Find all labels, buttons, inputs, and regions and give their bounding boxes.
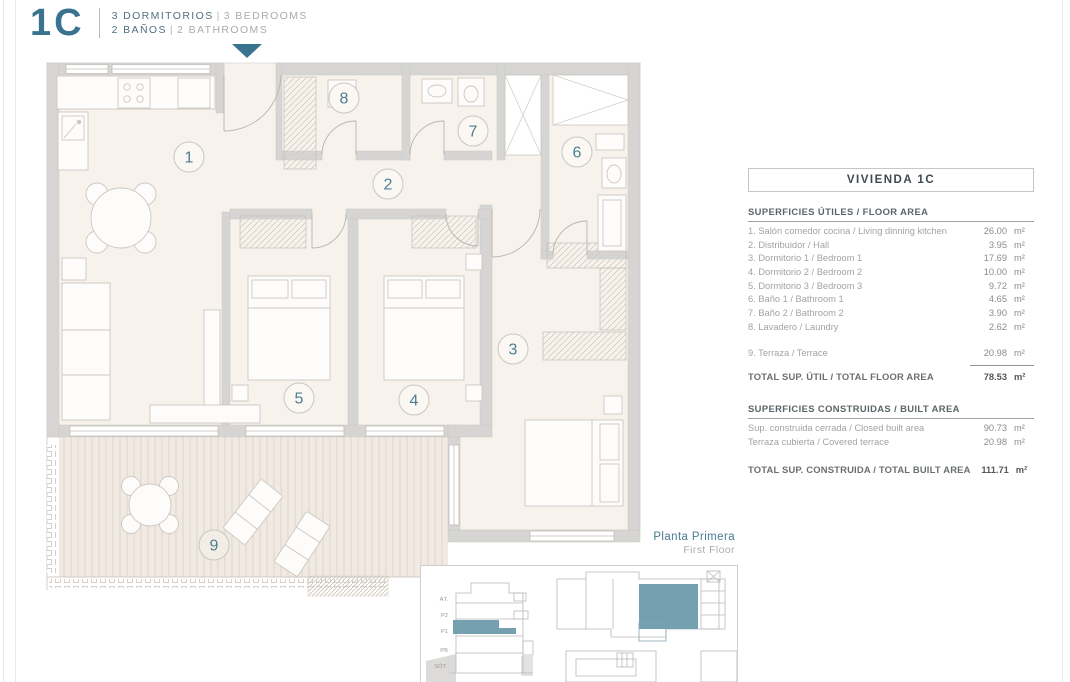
- table-row: 7. Baño 2 / Bathroom 23.90m²: [748, 307, 1034, 321]
- floor-title: Planta Primera First Floor: [560, 530, 735, 557]
- separator: |: [214, 10, 224, 22]
- svg-text:4: 4: [410, 393, 419, 410]
- svg-text:5: 5: [295, 391, 304, 408]
- room-circle-2: 2: [373, 169, 403, 199]
- floor-label-sotano: SÓT.: [434, 663, 447, 670]
- useful-area-heading: SUPERFICIES ÚTILES / FLOOR AREA: [748, 206, 1034, 222]
- tv-unit: [204, 310, 220, 412]
- bedrooms-es: 3 DORMITORIOS: [112, 10, 214, 22]
- sideboard: [150, 405, 260, 423]
- brochure-page: 1C 3 DORMITORIOS|3 BEDROOMS 2 BAÑOS|2 BA…: [0, 0, 1070, 682]
- page-edge-line-left-outer: [3, 0, 4, 682]
- svg-text:6: 6: [573, 145, 582, 162]
- entrance-arrow-icon: [232, 44, 262, 58]
- floor-plan: 1 2 3 4 5 6 7: [30, 40, 660, 610]
- room-circle-5: 5: [284, 383, 314, 413]
- header-subtitle: 3 DORMITORIOS|3 BEDROOMS 2 BAÑOS|2 BATHR…: [112, 4, 308, 37]
- svg-text:2: 2: [384, 177, 393, 194]
- header: 1C 3 DORMITORIOS|3 BEDROOMS 2 BAÑOS|2 BA…: [30, 4, 308, 42]
- total-floor-area-row: TOTAL SUP. ÚTIL / TOTAL FLOOR AREA78.53m…: [748, 369, 1034, 385]
- table-row: Sup. construida cerrada / Closed built a…: [748, 422, 1034, 436]
- bedrooms-en: 3 BEDROOMS: [224, 10, 308, 22]
- bathrooms-en: 2 BATHROOMS: [177, 24, 268, 36]
- page-edge-line-left-inner: [15, 0, 16, 682]
- svg-text:3: 3: [509, 342, 518, 359]
- locator-panel: ÁT. P2 P1 PB SÓT.: [420, 565, 738, 682]
- floor-label-p2: P2: [441, 613, 448, 619]
- table-row: 1. Salón comedor cocina / Living dinning…: [748, 225, 1034, 239]
- room-circle-4: 4: [399, 385, 429, 415]
- table-row: 6. Baño 1 / Bathroom 14.65m²: [748, 293, 1034, 307]
- floor-title-en: First Floor: [560, 544, 735, 557]
- svg-text:7: 7: [469, 124, 478, 141]
- table-row: 5. Dormitorio 3 / Bedroom 39.72m²: [748, 280, 1034, 294]
- built-area-heading: SUPERFICIES CONSTRUIDAS / BUILT AREA: [748, 403, 1034, 419]
- bathrooms-es: 2 BAÑOS: [112, 24, 167, 36]
- areas-table: VIVIENDA 1C SUPERFICIES ÚTILES / FLOOR A…: [748, 168, 1034, 478]
- table-row: 3. Dormitorio 1 / Bedroom 117.69m²: [748, 252, 1034, 266]
- floor-title-es: Planta Primera: [560, 530, 735, 544]
- side-table: [62, 258, 86, 280]
- locator-drawing: ÁT. P2 P1 PB SÓT.: [421, 566, 737, 682]
- room-circle-6: 6: [562, 137, 592, 167]
- bathrooms-line: 2 BAÑOS|2 BATHROOMS: [112, 23, 308, 37]
- svg-text:8: 8: [340, 91, 349, 108]
- table-row: Terraza cubierta / Covered terrace20.98m…: [748, 436, 1034, 450]
- room-circle-3: 3: [498, 334, 528, 364]
- highlighted-unit: [639, 584, 698, 629]
- terrace-row: 9. Terraza / Terrace20.98m²: [748, 347, 1034, 361]
- floor-label-atico: ÁT.: [440, 596, 449, 603]
- svg-text:1: 1: [185, 150, 194, 167]
- room-circle-7: 7: [458, 116, 488, 146]
- table-title: VIVIENDA 1C: [748, 168, 1034, 192]
- svg-text:9: 9: [210, 538, 219, 555]
- table-row: 8. Lavadero / Laundry2.62m²: [748, 321, 1034, 335]
- separator: |: [167, 24, 177, 36]
- dining-table: [86, 183, 156, 253]
- planter-greenery: [308, 576, 388, 596]
- terrace-railing-left: [47, 445, 56, 573]
- floor-label-p1: P1: [441, 629, 448, 635]
- highlighted-floor-p1: [453, 620, 516, 634]
- room-circle-9: 9: [199, 530, 229, 560]
- total-divider: [970, 365, 1034, 366]
- page-edge-line-right: [1062, 0, 1063, 682]
- bedrooms-line: 3 DORMITORIOS|3 BEDROOMS: [112, 9, 308, 23]
- room-circle-8: 8: [329, 83, 359, 113]
- floor-label-pb: PB: [440, 648, 448, 654]
- room-circle-1: 1: [174, 142, 204, 172]
- key-plan: [557, 571, 737, 682]
- unit-id: 1C: [30, 4, 85, 42]
- table-row: 4. Dormitorio 2 / Bedroom 210.00m²: [748, 266, 1034, 280]
- header-divider: [99, 8, 100, 38]
- table-row: 2. Distribuidor / Hall3.95m²: [748, 239, 1034, 253]
- total-built-area-row: TOTAL SUP. CONSTRUIDA / TOTAL BUILT AREA…: [748, 462, 1034, 478]
- terrace-table: [122, 477, 179, 534]
